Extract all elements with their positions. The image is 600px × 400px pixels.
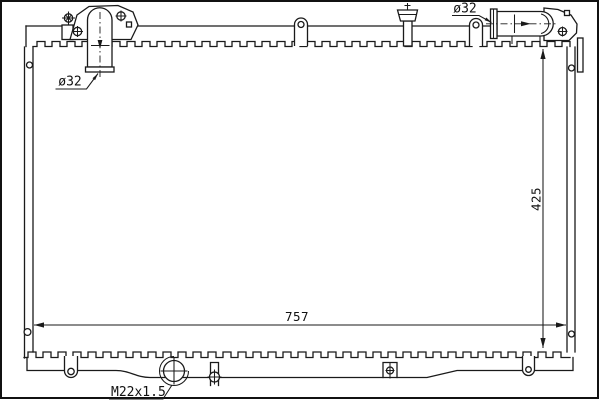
- left-side-channel: [24, 47, 33, 358]
- bottom-boss-fitting: [208, 363, 222, 386]
- inlet-diameter-label: ø32: [58, 75, 81, 90]
- core-height-label: 425: [529, 187, 544, 211]
- right-side-channel: [567, 47, 575, 352]
- bottom-right-mount-tab: [523, 356, 535, 376]
- outlet-bracket-flange: [578, 38, 584, 72]
- dim-arrow-right: [556, 322, 566, 327]
- bracket-notch: [565, 11, 570, 16]
- bottom-left-mount-tab: [65, 356, 78, 378]
- bottom-crimp-serration: [24, 352, 570, 358]
- width-dimension: 757: [34, 309, 566, 328]
- drain-plug-callout: M22x1.5: [109, 385, 172, 400]
- bottom-bracket-box: [383, 363, 397, 379]
- dim-arrow-left: [34, 322, 44, 327]
- drawing-canvas: 757 425: [0, 0, 600, 400]
- outlet-diameter-label: ø32: [453, 2, 476, 17]
- filler-neck: [398, 3, 418, 46]
- top-mount-tab-left: [295, 18, 308, 46]
- radiator-technical-drawing: 757 425: [0, 0, 600, 400]
- drain-plug-thread-label: M22x1.5: [111, 385, 166, 400]
- bottom-tank-outline: [27, 358, 573, 378]
- top-mount-tab-right: [470, 19, 483, 47]
- dim-arrow-top: [540, 49, 545, 59]
- drain-plug: [160, 357, 189, 386]
- bolt-icon: [62, 12, 75, 25]
- bracket-slot: [127, 22, 132, 27]
- dim-arrow-bottom: [540, 338, 545, 348]
- bottom-tank: [24, 352, 573, 378]
- core-width-label: 757: [285, 309, 309, 324]
- inlet-diameter-callout: ø32: [56, 74, 99, 90]
- inlet-pipe: [86, 8, 115, 78]
- outlet-pipe-stems: [512, 36, 540, 44]
- drain-plug-cross: [161, 358, 188, 385]
- height-dimension: 425: [529, 49, 546, 348]
